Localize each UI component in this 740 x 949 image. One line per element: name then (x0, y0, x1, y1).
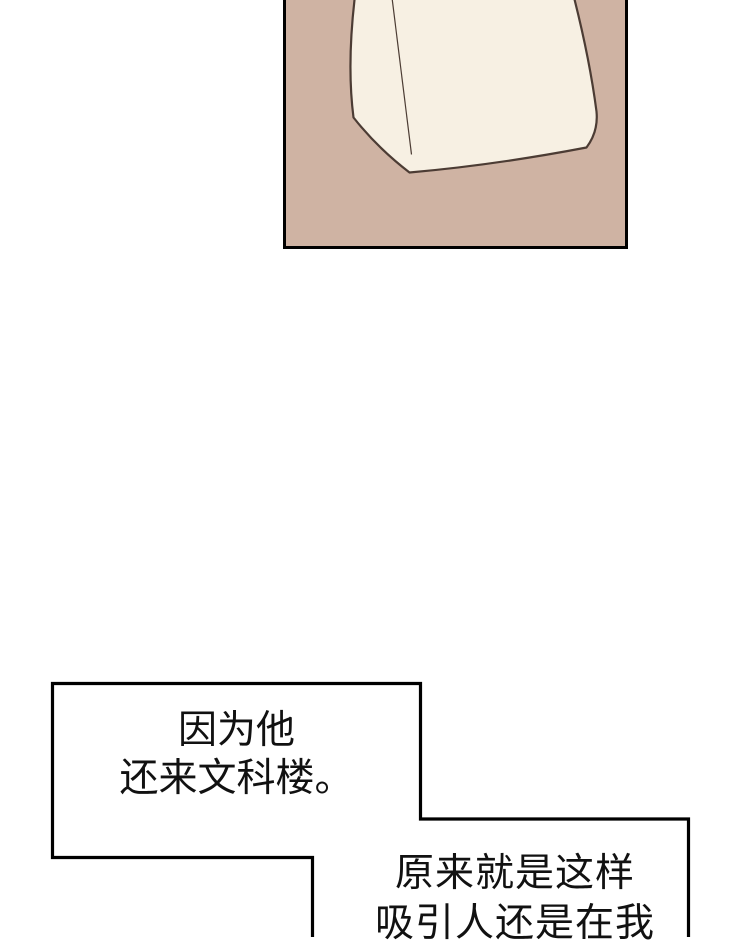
speech-bubble-2-line-1: 原来就是这样 (340, 849, 690, 899)
speech-bubble-1-line-1: 因为他 (52, 707, 421, 755)
speech-bubble-1-text: 因为他 还来文科楼。 (52, 707, 421, 803)
speech-bubble-2-text: 原来就是这样 吸引人还是在我 (340, 849, 690, 949)
speech-bubble-2-line-2: 吸引人还是在我 (340, 899, 690, 949)
speech-bubble-1-line-2: 还来文科楼。 (52, 755, 421, 803)
